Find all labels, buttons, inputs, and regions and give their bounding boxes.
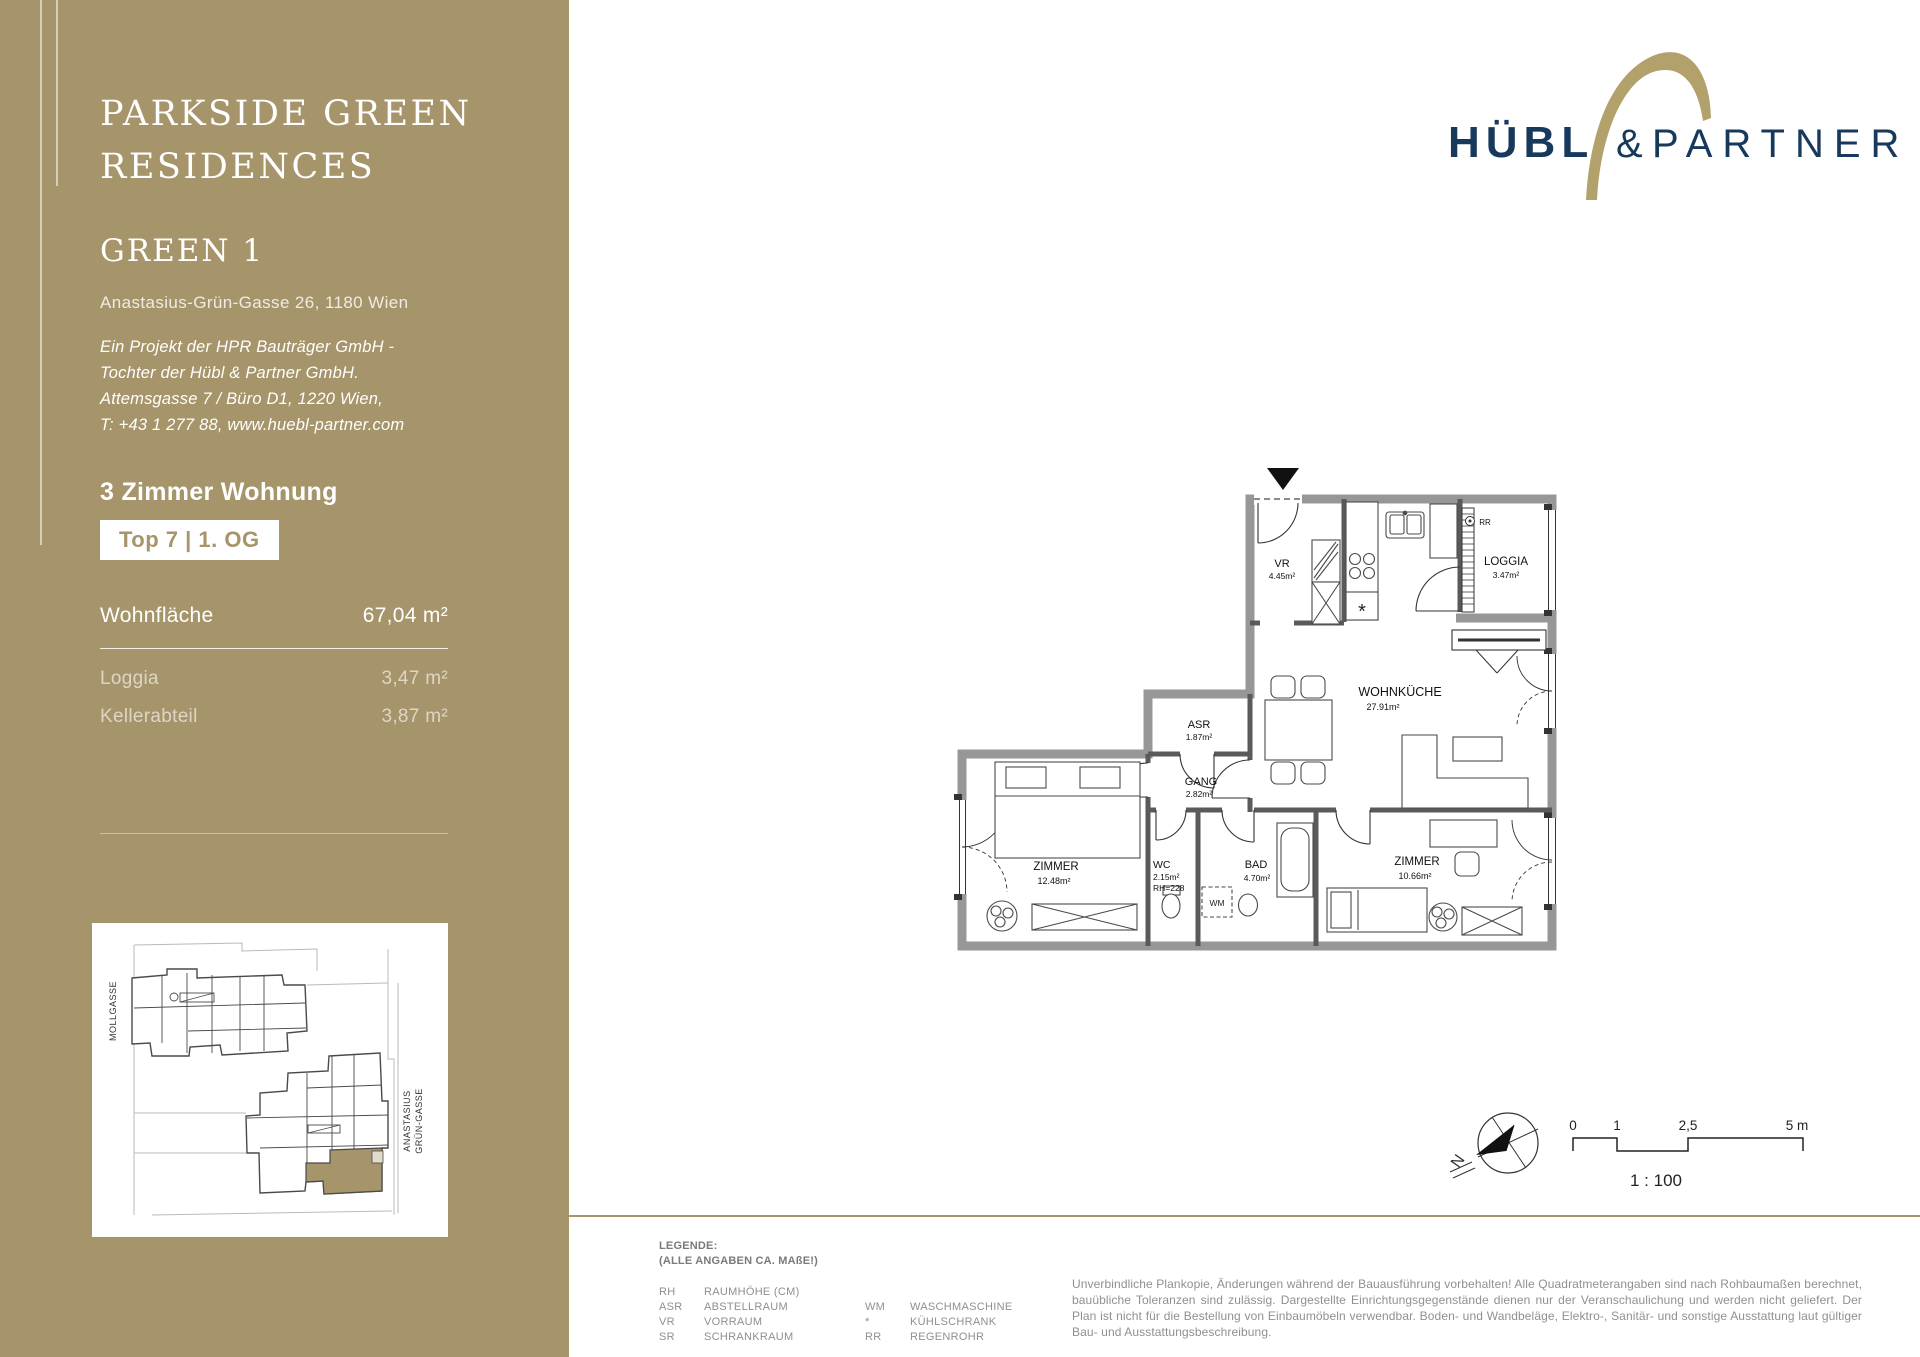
scale-bar: 0 1 2,5 5 m 1 : 100 — [1569, 1118, 1808, 1190]
vr-closet — [1312, 540, 1340, 624]
legend-note: (ALLE ANGABEN CA. MAßE!) — [659, 1255, 1059, 1267]
desk — [1430, 820, 1497, 847]
building-a-outline — [132, 969, 307, 1056]
legend-abbr: * — [865, 1316, 870, 1328]
room-label-wohnkueche: WOHNKÜCHE — [1358, 685, 1441, 699]
legend-desc: ABSTELLRAUM — [704, 1301, 788, 1313]
company-info: Ein Projekt der HPR Bauträger GmbH - Toc… — [100, 334, 404, 438]
scale-ratio: 1 : 100 — [1630, 1171, 1682, 1190]
chair — [1455, 852, 1479, 876]
legend-abbr: WM — [865, 1301, 885, 1313]
area-label: Kellerabteil — [100, 706, 198, 728]
page-title-line2: RESIDENCES — [100, 141, 472, 194]
legend-abbr: ASR — [659, 1301, 683, 1313]
entrance-arrow-icon — [1267, 468, 1299, 490]
room-label-zimmer-west: ZIMMER — [1033, 861, 1078, 873]
page-title-line1: PARKSIDE GREEN — [100, 88, 472, 141]
sofa — [1402, 735, 1528, 808]
company-info-line1: Ein Projekt der HPR Bauträger GmbH - — [100, 334, 404, 360]
room-area-zimmer-west: 12.48m² — [1037, 876, 1070, 886]
fridge-symbol: * — [1358, 601, 1366, 623]
street-label-gruen-gasse: GRÜN-GASSE — [414, 1088, 424, 1154]
legend-desc: REGENROHR — [910, 1331, 984, 1343]
legend-abbr: SR — [659, 1331, 675, 1343]
street-label-anastasius: ANASTASIUS — [402, 1090, 412, 1151]
room-label-loggia: LOGGIA — [1484, 556, 1528, 568]
apartment-type: 3 Zimmer Wohnung — [100, 478, 338, 507]
legend-abbr: VR — [659, 1316, 675, 1328]
area-value: 67,04 m² — [363, 604, 448, 628]
company-info-line2: Tochter der Hübl & Partner GmbH. — [100, 360, 404, 386]
plan-disclaimer: Unverbindliche Plankopie, Änderungen wäh… — [1072, 1276, 1862, 1340]
room-label-zimmer-ost: ZIMMER — [1394, 856, 1439, 868]
room-height-wc: RH=228 — [1153, 883, 1185, 893]
decor-line-short — [56, 0, 58, 186]
legend-desc: RAUMHÖHE (CM) — [704, 1286, 800, 1298]
scale-tick-1: 1 — [1613, 1118, 1621, 1133]
north-and-scale: N 0 1 2,5 5 m 1 : 100 — [1440, 1088, 1840, 1208]
huebl-partner-logo: HÜBL & PARTNER — [1440, 30, 1920, 200]
toilet-icon — [1162, 894, 1180, 918]
legend-desc: SCHRANKRAUM — [704, 1331, 793, 1343]
legend-desc: VORRAUM — [704, 1316, 762, 1328]
legend-title: LEGENDE: — [659, 1240, 1059, 1252]
site-map-graphic: MOLLGASSE ANASTASIUS GRÜN-GASSE — [92, 923, 448, 1237]
logo-word-huebl: HÜBL — [1448, 118, 1594, 167]
legend-row: SR SCHRANKRAUM RR REGENROHR — [659, 1331, 1059, 1346]
page-title: PARKSIDE GREEN RESIDENCES — [100, 88, 472, 194]
company-info-line3: Attemsgasse 7 / Büro D1, 1220 Wien, — [100, 386, 404, 412]
rainpipe-icon — [1466, 517, 1475, 526]
area-row-kellerabteil: Kellerabteil 3,87 m² — [100, 706, 448, 728]
footer-divider — [569, 1215, 1920, 1217]
legend-abbr: RR — [865, 1331, 882, 1343]
area-row-loggia: Loggia 3,47 m² — [100, 668, 448, 690]
street-label-mollgasse: MOLLGASSE — [108, 981, 118, 1041]
room-area-loggia: 3.47m² — [1493, 570, 1520, 580]
legend-abbr: RH — [659, 1286, 676, 1298]
room-area-bad: 4.70m² — [1244, 873, 1271, 883]
legend-row: VR VORRAUM * KÜHLSCHRANK — [659, 1316, 1059, 1331]
floor-plan: * WM — [940, 460, 1570, 970]
decor-line-long — [40, 0, 42, 545]
site-location-map: MOLLGASSE ANASTASIUS GRÜN-GASSE — [92, 923, 448, 1237]
legend: LEGENDE: (ALLE ANGABEN CA. MAßE!) RH RAU… — [659, 1240, 1059, 1346]
room-label-vr: VR — [1274, 558, 1289, 570]
sidebar: PARKSIDE GREEN RESIDENCES GREEN 1 Anasta… — [0, 0, 569, 1357]
section-divider — [100, 833, 448, 834]
room-area-zimmer-ost: 10.66m² — [1398, 871, 1431, 881]
rainpipe-label: RR — [1479, 518, 1491, 527]
room-area-asr: 1.87m² — [1186, 732, 1213, 742]
project-name: GREEN 1 — [100, 233, 264, 269]
washbasin-icon — [1239, 894, 1258, 916]
room-area-wohnkueche: 27.91m² — [1366, 702, 1399, 712]
bedroom-west-furniture — [987, 762, 1140, 931]
legend-row: ASR ABSTELLRAUM WM WASCHMASCHINE — [659, 1301, 1059, 1316]
area-label: Loggia — [100, 668, 159, 690]
scale-tick-2: 2,5 — [1679, 1118, 1698, 1133]
area-divider — [100, 648, 448, 649]
room-label-gang: GANG — [1185, 776, 1217, 788]
dining-set — [1265, 676, 1332, 784]
project-address: Anastasius-Grün-Gasse 26, 1180 Wien — [100, 293, 409, 313]
coffee-table — [1453, 737, 1502, 761]
legend-row: RH RAUMHÖHE (CM) — [659, 1286, 1059, 1301]
north-compass-icon — [1476, 1113, 1538, 1173]
room-label-asr: ASR — [1188, 719, 1211, 731]
area-value: 3,47 m² — [381, 668, 448, 690]
area-label: Wohnfläche — [100, 604, 214, 628]
room-area-vr: 4.45m² — [1269, 571, 1296, 581]
washing-machine-label: WM — [1209, 898, 1224, 908]
scale-tick-0: 0 — [1569, 1118, 1577, 1133]
room-label-bad: BAD — [1245, 859, 1268, 871]
area-value: 3,87 m² — [381, 706, 448, 728]
scale-tick-3: 5 m — [1786, 1118, 1809, 1133]
legend-desc: KÜHLSCHRANK — [910, 1316, 996, 1328]
area-row-main: Wohnfläche 67,04 m² — [100, 604, 448, 628]
unit-badge: Top 7 | 1. OG — [100, 520, 279, 560]
room-area-gang: 2.82m² — [1186, 789, 1213, 799]
logo-word-partner: PARTNER — [1652, 122, 1909, 166]
legend-desc: WASCHMASCHINE — [910, 1301, 1013, 1313]
room-label-wc: WC — [1153, 859, 1171, 871]
room-area-wc: 2.15m² — [1153, 872, 1180, 882]
company-info-line4: T: +43 1 277 88, www.huebl-partner.com — [100, 412, 404, 438]
logo-ampersand: & — [1616, 122, 1643, 166]
window-bench — [1452, 630, 1546, 673]
